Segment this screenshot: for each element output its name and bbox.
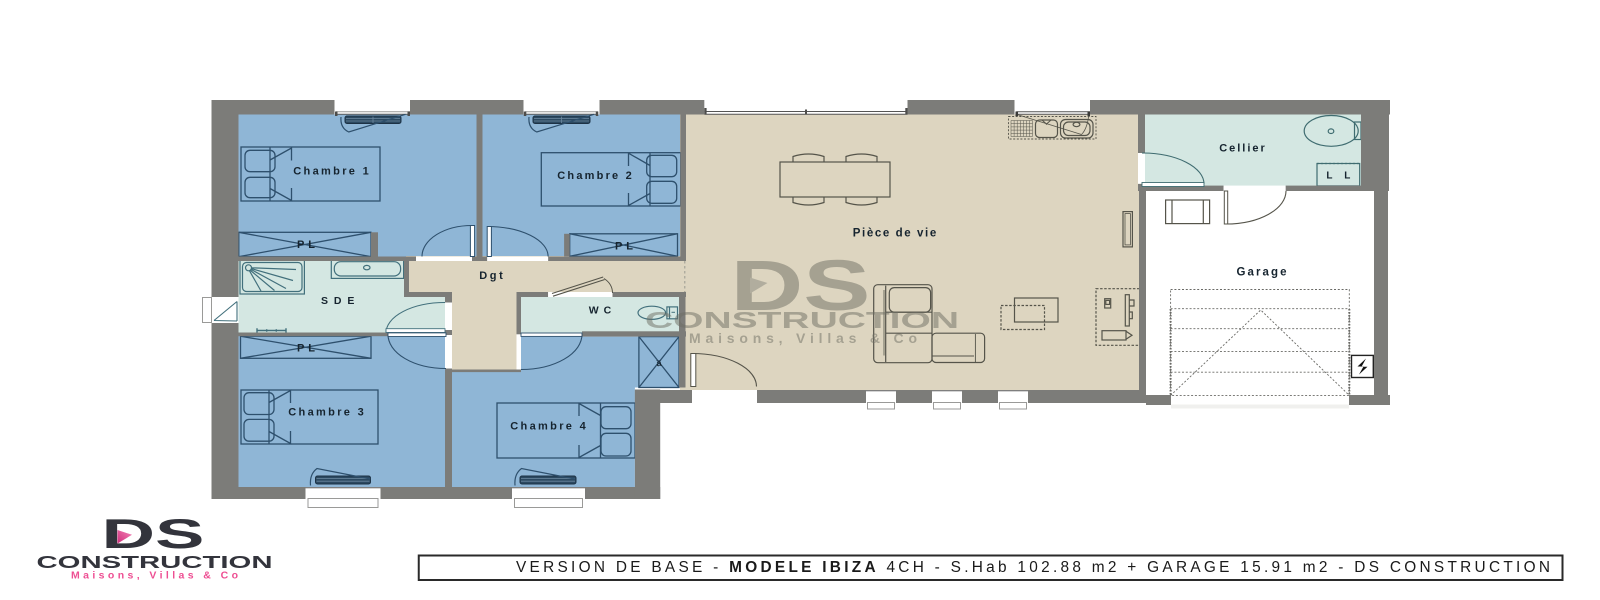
svg-text:SDE: SDE — [321, 295, 355, 307]
svg-text:DS: DS — [102, 510, 205, 557]
svg-text:Dgt: Dgt — [479, 270, 503, 282]
svg-text:VERSION DE BASE - MODELE IBIZA: VERSION DE BASE - MODELE IBIZA 4CH - S.H… — [516, 559, 1550, 576]
